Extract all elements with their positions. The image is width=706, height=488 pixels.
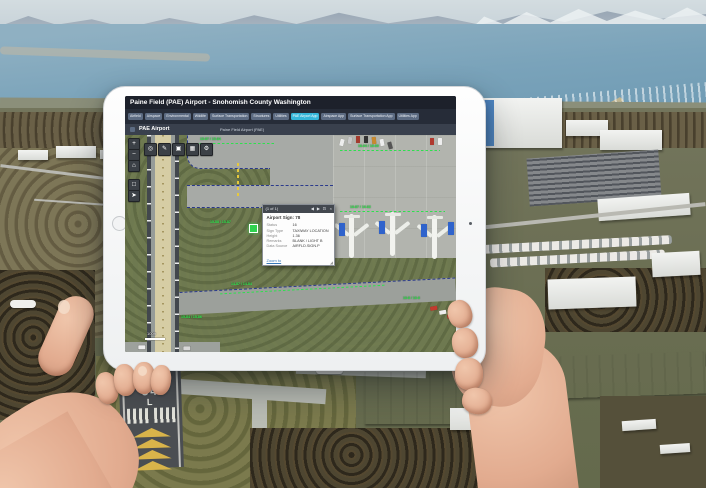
annotation-label: 15-87 / 15-84 <box>200 137 221 141</box>
vehicle <box>356 136 360 143</box>
annotation-line <box>340 211 445 212</box>
popup-fields: Status16 Sign TypeTAXIWAY LOCATION Heigh… <box>267 222 332 250</box>
app-name: PAE Airport <box>139 126 170 132</box>
right-finger <box>455 358 483 390</box>
settings-tool-button[interactable]: ⚙ <box>200 143 213 156</box>
field-label: Remarks <box>267 239 293 243</box>
tab-surface-transportation-app[interactable]: Surface Transportation App <box>348 113 394 121</box>
bg-building <box>600 130 662 150</box>
tab-environmental[interactable]: Environmental <box>164 113 190 121</box>
popup-field-row: Height1.36 <box>267 234 332 238</box>
bg-building <box>651 251 700 277</box>
map-canvas[interactable]: 15-87 / 15-84 16-64 / 16-60 16-87 / 16-8… <box>125 135 456 352</box>
fuselage <box>432 215 437 259</box>
vehicle <box>364 136 368 143</box>
fuselage <box>349 214 354 258</box>
tab-bar: Airfield Airspace Environmental Wildlife… <box>125 109 456 124</box>
popup-field-row: Data SourceAIRFLD.SIGN.P <box>267 244 332 248</box>
zoom-to-link[interactable]: Zoom to <box>267 258 282 263</box>
field-value: BLANK / LIGHT B <box>293 239 323 243</box>
tab-surface-transportation[interactable]: Surface Transportation <box>210 113 249 121</box>
bg-building <box>548 276 637 309</box>
field-label: Sign Type <box>267 229 293 233</box>
feature-popup: (1 of 1) ◀ ▶ ⊡ × Airport Sign: 78 Status… <box>262 204 335 266</box>
tab-structures[interactable]: Structures <box>251 113 271 121</box>
tab-utilities[interactable]: Utilities <box>273 113 288 121</box>
ground-equipment-blue <box>421 224 427 237</box>
annotation-label: 16-64 / 16-60 <box>358 144 379 148</box>
stabilizer <box>427 216 443 219</box>
selected-sign-marker[interactable] <box>249 224 258 233</box>
vehicle <box>372 137 377 144</box>
tab-utilities-app[interactable]: Utilities App <box>397 113 419 121</box>
table-tool-button[interactable]: ▦ <box>186 143 199 156</box>
ground-equipment-blue <box>379 221 385 234</box>
tab-pae-airport-app[interactable]: PAE Airport App <box>291 113 320 121</box>
popup-heading: Airport Sign: 78 <box>267 215 301 220</box>
home-extent-button[interactable]: ⌂ <box>128 160 140 172</box>
popup-titlebar[interactable]: (1 of 1) ◀ ▶ ⊡ × <box>263 205 334 213</box>
tab-airfield[interactable]: Airfield <box>128 113 143 121</box>
bg-building <box>18 150 48 160</box>
annotation-line <box>340 150 440 151</box>
layers-tool-button[interactable]: ▣ <box>172 143 185 156</box>
ground-equipment-blue <box>448 222 454 235</box>
left-thumbnail <box>58 300 70 314</box>
stabilizer <box>385 213 401 216</box>
airplane <box>334 214 370 259</box>
field-value: AIRFLD.SIGN.P <box>293 244 320 248</box>
popup-field-row: Sign TypeTAXIWAY LOCATION <box>267 229 332 233</box>
popup-field-row: Status16 <box>267 223 332 227</box>
popup-prev-icon[interactable]: ◀ <box>311 205 314 213</box>
threshold-bars <box>127 408 150 424</box>
draw-tool-button[interactable]: ✎ <box>158 143 171 156</box>
fuselage <box>390 212 395 256</box>
field-label: Status <box>267 223 293 227</box>
vehicle <box>438 138 442 145</box>
app-title: Paine Field (PAE) Airport - Snohomish Co… <box>125 96 456 109</box>
locate-button[interactable]: ➤ <box>128 190 140 202</box>
field-value: TAXIWAY LOCATION <box>293 229 329 233</box>
bg-field-bottom-right <box>600 396 706 488</box>
vehicle <box>379 139 384 146</box>
bg-small-airplane <box>10 300 36 308</box>
popup-close-icon[interactable]: × <box>330 205 332 213</box>
bg-building <box>56 146 96 158</box>
popup-field-row: RemarksBLANK / LIGHT B <box>267 239 332 243</box>
vehicle <box>139 345 146 349</box>
tablet-screen: Paine Field (PAE) Airport - Snohomish Co… <box>125 96 456 352</box>
annotation-label: 16-87 / 16-82 <box>350 205 371 209</box>
vehicle <box>430 138 434 145</box>
annotation-label: 15-84 / 15-86 <box>181 315 202 319</box>
popup-resize-handle[interactable]: ◢ <box>330 260 333 265</box>
sub-bar: PAE Airport Paine Field Airport (PAE) <box>125 124 456 135</box>
camera-dot <box>469 222 472 225</box>
stabilizer <box>344 215 360 218</box>
popup-next-icon[interactable]: ▶ <box>317 205 320 213</box>
map-title: Paine Field Airport (PAE) <box>220 127 264 132</box>
map-taxiway-edge-right <box>175 135 179 352</box>
popup-pager: (1 of 1) <box>266 206 279 211</box>
layers-icon[interactable] <box>130 127 135 132</box>
scale-label: 100ft <box>147 331 156 336</box>
popup-maximize-icon[interactable]: ⊡ <box>323 205 326 213</box>
wing <box>353 223 369 237</box>
field-value: 16 <box>293 223 297 227</box>
tab-airspace[interactable]: Airspace <box>145 113 163 121</box>
threshold-bars <box>154 407 177 423</box>
wing <box>394 221 410 235</box>
field-value: 1.36 <box>293 234 300 238</box>
bg-boeing-factory <box>482 98 562 148</box>
scene: 34 L Paine Field (PAE) Airport - Snohomi… <box>0 0 706 488</box>
identify-tool-button[interactable]: ◎ <box>144 143 157 156</box>
tab-wildlife[interactable]: Wildlife <box>193 113 208 121</box>
scale-bar <box>145 338 165 340</box>
airplane <box>375 212 411 258</box>
tab-airspace-app[interactable]: Airspace App <box>321 113 346 121</box>
ground-equipment-blue <box>339 223 345 236</box>
annotation-label: 14-87 / 14-84 <box>231 282 252 286</box>
map-yellow-edge-lights <box>237 163 239 198</box>
field-label: Height <box>267 234 293 238</box>
left-fingernail <box>138 366 147 376</box>
annotation-label: 15-88 / 15-87 <box>210 220 231 224</box>
annotation-label: 16-8 / 16-6 <box>403 296 420 300</box>
vehicle <box>184 346 191 350</box>
map-taxiway-centerline-strip <box>155 135 171 352</box>
field-label: Data Source <box>267 244 293 248</box>
bg-hangar-right <box>559 351 706 398</box>
